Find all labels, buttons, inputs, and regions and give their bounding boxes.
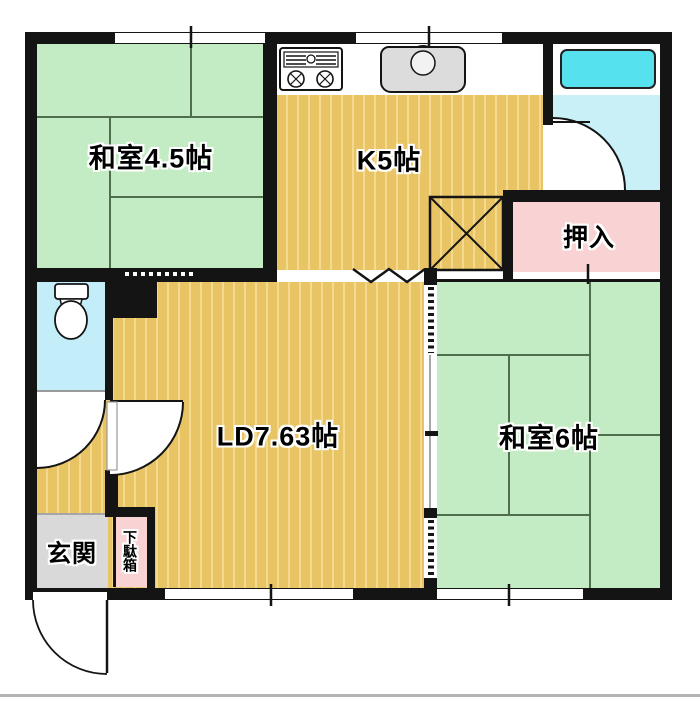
room-label-washitsu45: 和室4.5帖 — [89, 137, 214, 176]
sink-icon — [381, 46, 465, 92]
room-label-washitsu6: 和室6帖 — [499, 417, 599, 456]
room-label-kitchen: K5帖 — [357, 139, 422, 178]
room-label-oshiire: 押入 — [563, 218, 615, 254]
refrigerator-space-x-box — [430, 197, 503, 270]
bathroom-door — [543, 118, 625, 190]
hall-door — [107, 401, 183, 475]
floor-plan: 和室4.5帖 K5帖 LD7.63帖 和室6帖 押入 玄関 下駄箱 — [0, 0, 700, 701]
room-label-getabako: 下駄箱 — [120, 530, 140, 572]
bathtub-icon — [561, 50, 655, 88]
toilet-door — [37, 400, 105, 468]
stove-icon — [280, 48, 342, 90]
folding-door-zigzag — [353, 269, 425, 282]
sliding-door-tick — [425, 431, 438, 436]
toilet-icon — [55, 284, 88, 339]
room-label-living: LD7.63帖 — [217, 415, 340, 454]
room-label-genkan: 玄関 — [47, 534, 97, 569]
fixtures-layer — [0, 0, 700, 701]
entrance-door — [33, 600, 107, 674]
page-divider-line — [0, 694, 700, 697]
